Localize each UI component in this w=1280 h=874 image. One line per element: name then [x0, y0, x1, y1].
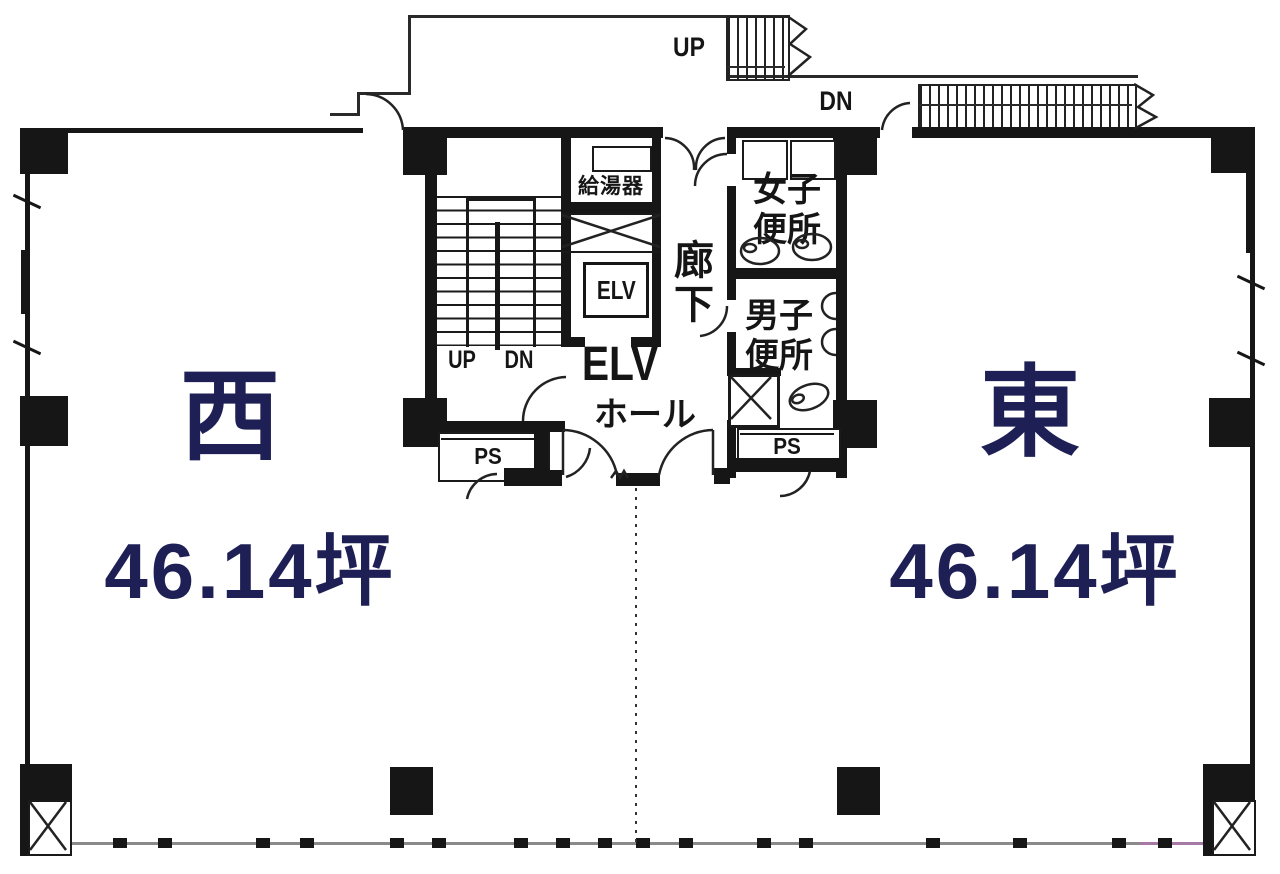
window-mullion-tick — [514, 838, 528, 848]
bottom-window-line-right — [1140, 842, 1206, 845]
column-bottom-west — [390, 767, 433, 815]
top-wall-east-segment — [912, 127, 1255, 138]
stair-up-label: UP — [445, 346, 479, 374]
hall-west-door-arc-lower — [566, 448, 590, 477]
left-wall — [25, 133, 30, 768]
tenant-divider-dotted-line — [635, 488, 637, 842]
corridor-exterior-door-arc-left — [665, 138, 694, 170]
toilet-left-wall-seg2 — [727, 186, 736, 300]
window-mullion-tick — [1013, 838, 1027, 848]
elevator-hall-label-line2: ホール — [560, 388, 730, 434]
corner-xbox-bottom-left — [28, 800, 72, 856]
ps-right-bottom-wall — [727, 458, 847, 472]
window-mullion-tick — [113, 838, 127, 848]
window-mullion-tick — [556, 838, 570, 848]
window-mullion-tick — [256, 838, 270, 848]
column-top-right — [1211, 127, 1255, 173]
hall-door-center-stub — [616, 473, 660, 486]
elevator-shaft-box: ELV — [583, 262, 649, 318]
exterior-stair-dn-label: DN — [816, 84, 857, 118]
window-mullion-tick — [799, 838, 813, 848]
landing-step-h1 — [357, 92, 411, 95]
landing-left-edge — [408, 15, 411, 95]
exterior-stair-dn-flight — [918, 84, 1137, 133]
dn-flight-break-zigzag — [1134, 84, 1156, 129]
landing-step-h2 — [330, 113, 360, 116]
right-wall-thick-segment — [1246, 173, 1255, 253]
window-mullion-tick — [1112, 838, 1126, 848]
womens-toilet-door-arc — [695, 154, 727, 186]
womens-toilet-label-line2: 便所 — [736, 204, 838, 248]
exterior-stair-up-flight — [726, 16, 790, 81]
column-left-mid — [20, 396, 68, 446]
window-mullion-tick — [300, 838, 314, 848]
toilet-divider-wall — [727, 268, 847, 279]
duct-shaft-box — [561, 213, 661, 253]
elevator-shaft-label: ELV — [597, 275, 636, 306]
west-room-name: 西 — [145, 352, 315, 462]
east-room-area: 46.14坪 — [825, 516, 1245, 614]
top-wall-core-segment — [425, 127, 663, 138]
stair-center-rail — [495, 222, 500, 350]
west-room-area: 46.14坪 — [40, 516, 460, 614]
window-mullion-tick — [636, 838, 650, 848]
left-wall-thick-segment — [21, 250, 30, 314]
window-mullion-tick — [757, 838, 771, 848]
heater-room-bottom-band — [561, 202, 661, 213]
window-mullion-tick — [926, 838, 940, 848]
pipe-space-left-label: PS — [452, 438, 524, 474]
up-flight-midline — [727, 66, 785, 68]
window-mullion-tick — [679, 838, 693, 848]
corridor-exterior-door-arc-right — [696, 138, 725, 170]
hall-main-door-arc-right — [659, 430, 713, 475]
window-mullion-tick — [598, 838, 612, 848]
dn-stair-door-arc — [882, 103, 910, 130]
toilet-left-wall-seg1 — [727, 138, 736, 154]
floor-plan: UP DN UP DN PS 給湯器 ELV — [0, 0, 1280, 874]
window-mullion-tick — [1158, 838, 1172, 848]
east-room-name: 東 — [945, 348, 1115, 458]
exterior-stair-up-label: UP — [668, 30, 711, 64]
hall-door-jamb-left — [546, 470, 562, 486]
dn-flight-midline — [919, 104, 1132, 106]
column-bottom-east — [837, 767, 880, 815]
water-heater-label: 給湯器 — [559, 170, 663, 199]
window-mullion-tick — [158, 838, 172, 848]
hall-main-door-arc-left — [563, 430, 617, 475]
top-wall-west-segment — [25, 128, 363, 133]
stairwell-left-wall — [425, 138, 437, 422]
mens-toilet-bowl — [786, 379, 832, 415]
up-flight-break-zigzag — [787, 16, 810, 77]
stairwell-bottom-wall — [425, 421, 565, 432]
water-heater-unit — [592, 146, 652, 172]
column-right-mid — [1209, 398, 1253, 447]
east-ps-door-arc — [780, 471, 810, 496]
stair-handrail — [466, 198, 536, 347]
mens-shaft-xbox — [728, 374, 780, 428]
corner-xbox-bottom-right — [1212, 800, 1256, 856]
elevator-hall-label-line1: ELV — [567, 336, 672, 392]
column-top-left — [20, 128, 68, 174]
window-mullion-tick — [390, 838, 404, 848]
pipe-space-right-label: PS — [760, 432, 814, 460]
window-mullion-tick — [432, 838, 446, 848]
west-landing-door-arc — [366, 94, 403, 130]
corridor-label: 廊下 — [664, 228, 716, 338]
stair-dn-label: DN — [502, 346, 536, 374]
